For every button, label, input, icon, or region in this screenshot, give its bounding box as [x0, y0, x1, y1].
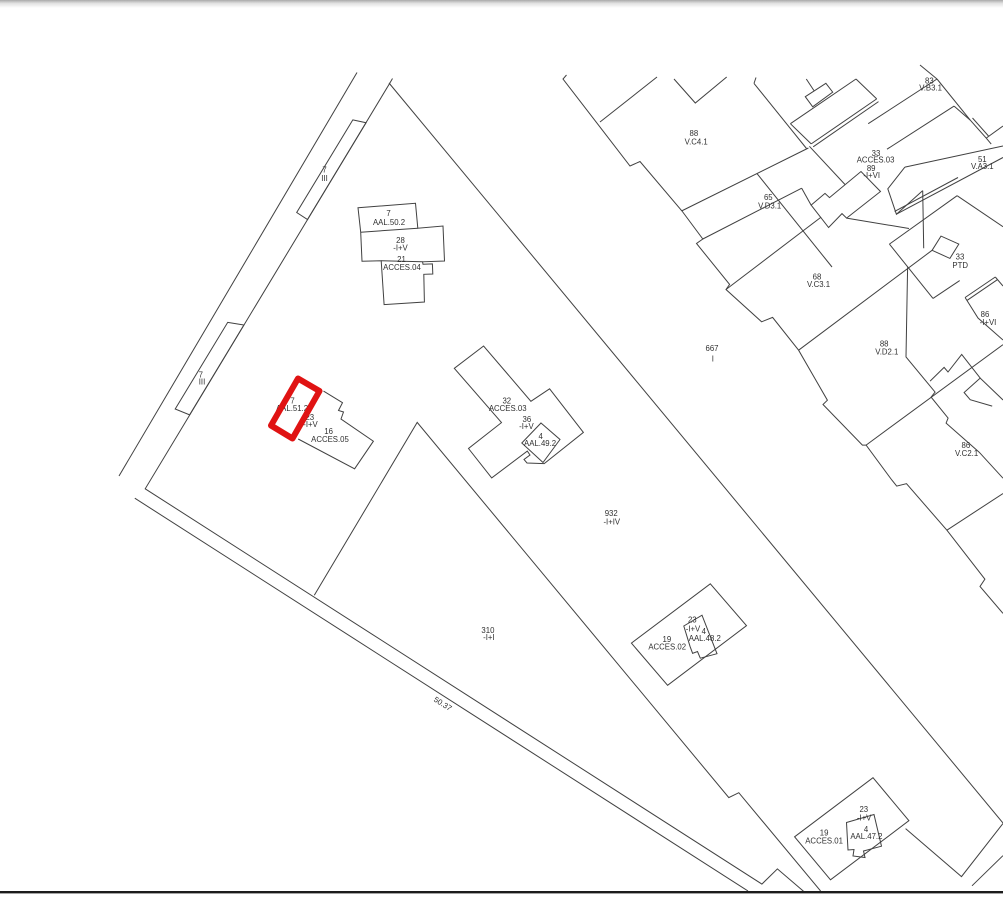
svg-text:AAL.47.2: AAL.47.2: [850, 832, 882, 841]
svg-text:III: III: [321, 174, 328, 183]
svg-text:-I+I: -I+I: [483, 633, 494, 642]
svg-text:PTD: PTD: [952, 261, 968, 270]
svg-text:ACCES.03: ACCES.03: [857, 156, 895, 165]
svg-text:ACCES.03: ACCES.03: [489, 404, 527, 413]
svg-text:-I+IV: -I+IV: [603, 518, 620, 527]
svg-text:ACCES.01: ACCES.01: [805, 837, 843, 846]
svg-text:V.C2.1: V.C2.1: [955, 449, 978, 458]
svg-text:V.D2.1: V.D2.1: [875, 347, 898, 356]
svg-text:-I+V: -I+V: [686, 624, 701, 633]
svg-text:667: 667: [705, 344, 718, 353]
svg-text:ACCES.05: ACCES.05: [311, 435, 349, 444]
svg-text:7: 7: [386, 209, 390, 218]
svg-text:23: 23: [688, 616, 697, 625]
svg-text:-I+V: -I+V: [519, 422, 534, 431]
svg-text:V.A3.1: V.A3.1: [971, 162, 994, 171]
svg-text:50.37: 50.37: [432, 695, 453, 713]
svg-text:V.B3.1: V.B3.1: [919, 84, 942, 93]
svg-text:ACCES.04: ACCES.04: [383, 263, 421, 272]
svg-text:-I+V: -I+V: [857, 813, 872, 822]
svg-text:AAL.48.2: AAL.48.2: [689, 634, 721, 643]
svg-text:-I+VI: -I+VI: [863, 171, 880, 180]
svg-text:AAL.49.2: AAL.49.2: [524, 439, 556, 448]
svg-text:-I+V: -I+V: [393, 244, 408, 253]
svg-text:-I+VI: -I+VI: [980, 318, 997, 327]
svg-text:I: I: [712, 354, 714, 363]
svg-text:ACCES.02: ACCES.02: [648, 643, 686, 652]
svg-text:V.C4.1: V.C4.1: [685, 138, 708, 147]
svg-text:V.D3.1: V.D3.1: [758, 201, 781, 210]
svg-text:AAL.50.2: AAL.50.2: [373, 218, 405, 227]
svg-text:V.C3.1: V.C3.1: [807, 280, 830, 289]
svg-text:III: III: [199, 377, 206, 386]
